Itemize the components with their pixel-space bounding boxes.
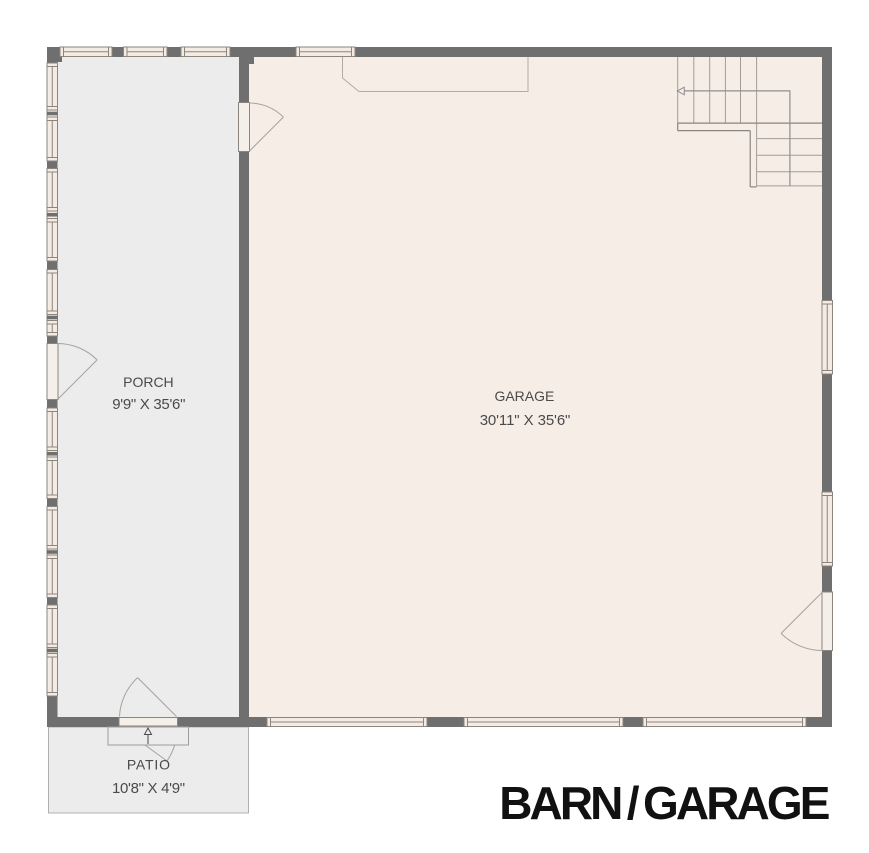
svg-text:PORCH: PORCH [123,374,174,390]
svg-text:30'11" X 35'6": 30'11" X 35'6" [480,412,571,429]
svg-text:PATIO: PATIO [127,757,171,773]
svg-text:BARN / GARAGE: BARN / GARAGE [499,777,828,829]
svg-text:10'8" X 4'9": 10'8" X 4'9" [112,780,185,797]
svg-text:GARAGE: GARAGE [494,388,554,404]
svg-text:9'9" X 35'6": 9'9" X 35'6" [112,396,185,413]
